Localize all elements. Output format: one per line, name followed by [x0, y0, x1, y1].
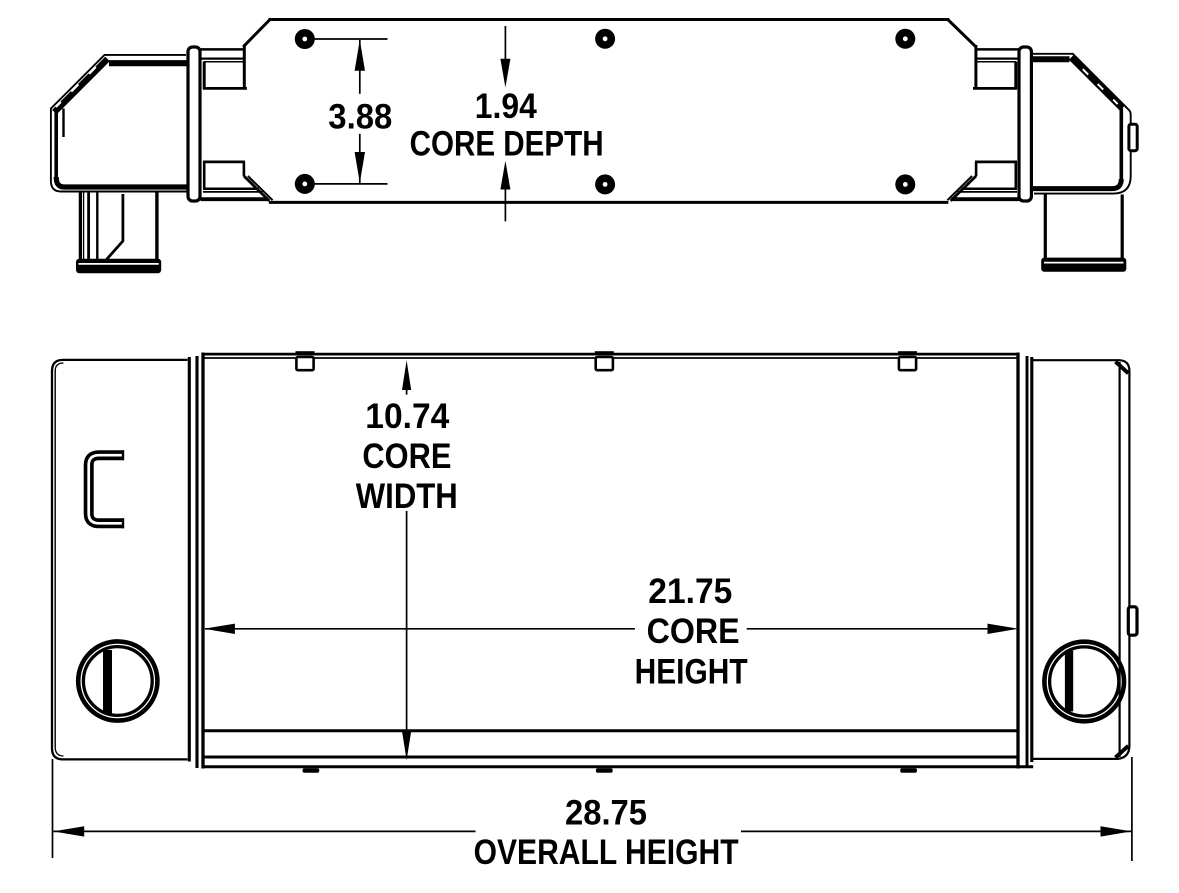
svg-text:10.74: 10.74: [365, 396, 449, 436]
svg-text:CORE: CORE: [647, 611, 740, 651]
svg-text:3.88: 3.88: [328, 97, 392, 137]
svg-text:CORE: CORE: [362, 436, 451, 476]
svg-text:28.75: 28.75: [565, 792, 647, 832]
svg-text:WIDTH: WIDTH: [356, 476, 458, 516]
svg-text:CORE DEPTH: CORE DEPTH: [410, 124, 604, 164]
svg-text:HEIGHT: HEIGHT: [635, 652, 748, 692]
svg-text:OVERALL HEIGHT: OVERALL HEIGHT: [474, 832, 739, 872]
svg-text:21.75: 21.75: [648, 571, 732, 611]
svg-text:1.94: 1.94: [475, 86, 537, 126]
